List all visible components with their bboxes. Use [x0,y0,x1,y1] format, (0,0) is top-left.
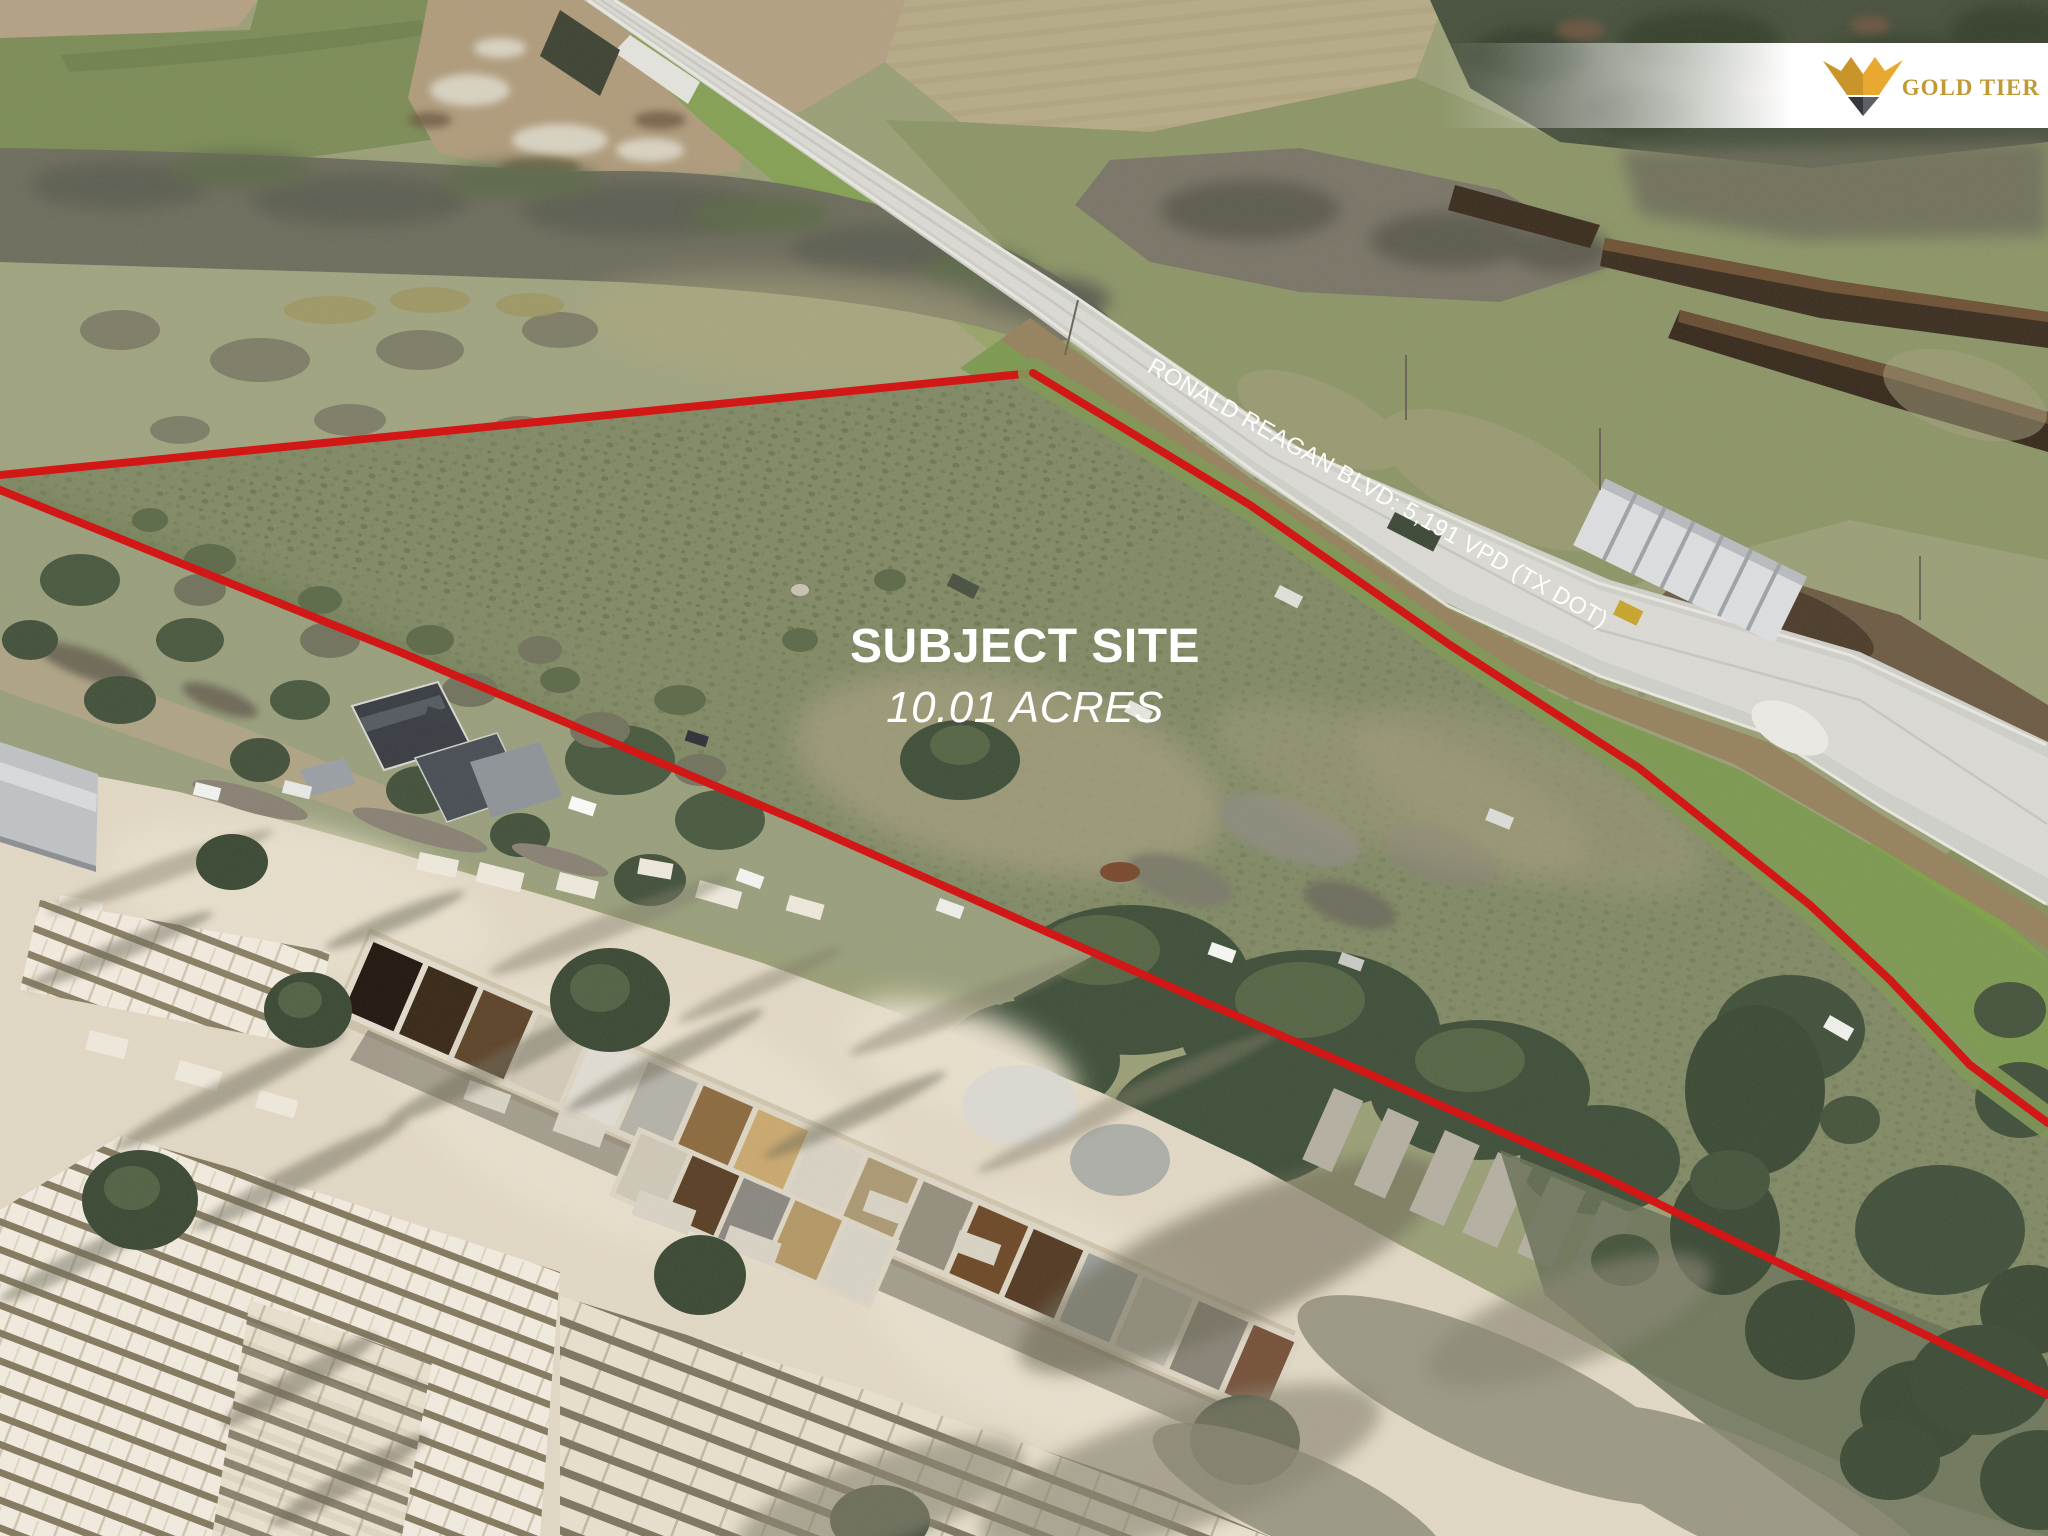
svg-text:SUBJECT SITE: SUBJECT SITE [850,620,1200,673]
svg-text:GOLD TIER: GOLD TIER [1902,75,2040,100]
svg-text:10.01 ACRES: 10.01 ACRES [886,683,1164,732]
